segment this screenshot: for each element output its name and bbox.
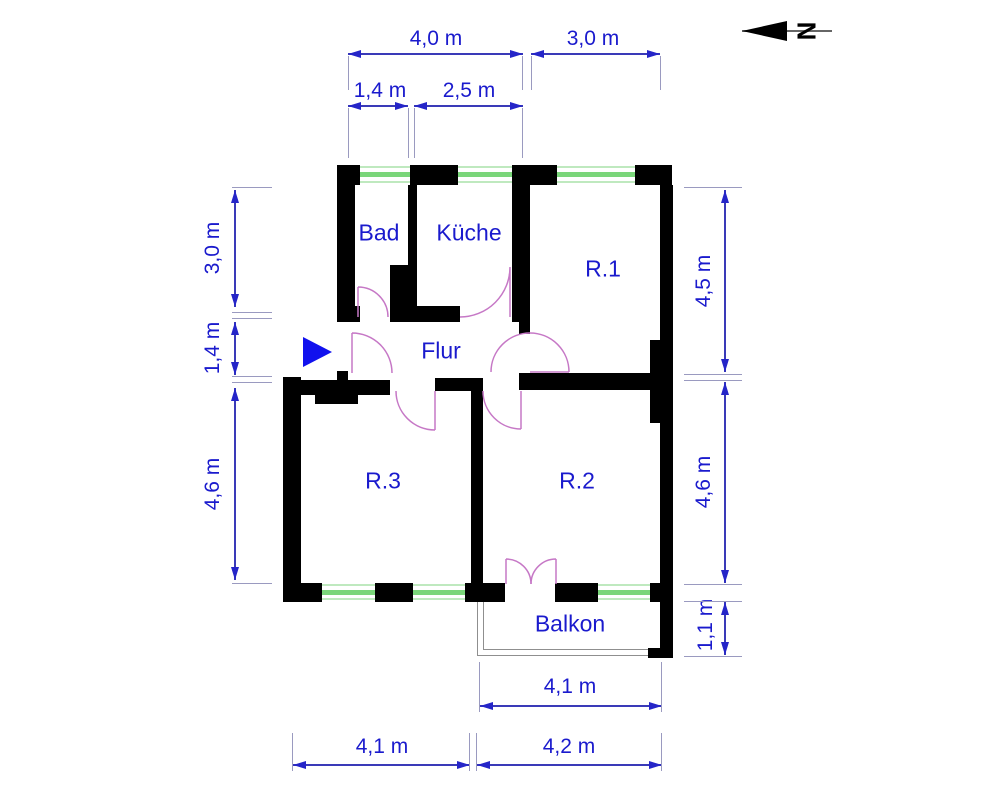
extension-line: [348, 108, 349, 158]
dim-arrow: [721, 382, 729, 395]
entrance-arrow-icon: [303, 337, 332, 367]
dim-arrow: [721, 190, 729, 203]
room-label-bad: Bad: [359, 220, 400, 247]
extension-line: [684, 187, 742, 188]
dim-arrow: [231, 322, 239, 335]
dim-arrow: [477, 761, 490, 769]
extension-line: [479, 662, 480, 712]
dim-arrow: [348, 50, 361, 58]
dim-arrow: [293, 761, 306, 769]
extension-line: [660, 56, 661, 90]
dim-text-balcony-width: 4,1 m: [544, 675, 597, 699]
dim-arrow: [231, 294, 239, 307]
dim-line: [293, 764, 470, 766]
dim-line: [477, 764, 662, 766]
door-arc-r1-left: [491, 333, 530, 372]
extension-line: [684, 584, 742, 585]
dim-line: [414, 105, 523, 107]
dim-text-right-middle: 4,6 m: [692, 456, 716, 509]
dim-arrow: [231, 567, 239, 580]
extension-line: [684, 374, 742, 375]
extension-line: [232, 382, 272, 383]
extension-line: [476, 733, 477, 771]
dim-text-bottom-right: 4,2 m: [543, 735, 596, 759]
dim-arrow: [721, 602, 729, 615]
dim-text-left-lower: 4,6 m: [201, 458, 225, 511]
dim-line: [234, 388, 236, 580]
dim-line: [480, 705, 662, 707]
dim-arrow: [231, 190, 239, 203]
extension-line: [414, 108, 415, 158]
extension-line: [469, 733, 470, 771]
dim-line: [724, 190, 726, 372]
extension-line: [292, 733, 293, 771]
extension-line: [531, 56, 532, 90]
dim-text-top-width-left: 4,0 m: [410, 27, 463, 51]
dim-line: [234, 190, 236, 307]
dim-arrow: [348, 102, 361, 110]
dim-arrow: [231, 362, 239, 375]
extension-line: [232, 583, 272, 584]
north-label: N: [791, 22, 822, 41]
door-arc-entrance: [352, 333, 392, 373]
extension-line: [408, 108, 409, 158]
extension-line: [232, 187, 272, 188]
room-label-kueche: Küche: [436, 220, 501, 247]
room-label-balkon: Balkon: [535, 611, 605, 638]
extension-line: [232, 318, 272, 319]
dim-arrow: [721, 642, 729, 655]
extension-line: [232, 312, 272, 313]
door-arc-r2: [483, 391, 521, 429]
room-label-flur: Flur: [421, 338, 461, 365]
extension-line: [684, 656, 742, 657]
door-arc-balcony-left: [506, 559, 531, 584]
extension-line: [232, 376, 272, 377]
door-swing-layer: [0, 0, 1000, 800]
dim-text-left-upper: 3,0 m: [201, 222, 225, 275]
dim-arrow: [721, 570, 729, 583]
door-arc-bad: [358, 287, 388, 317]
north-arrow-icon: [742, 21, 787, 41]
room-label-r1: R.1: [585, 256, 621, 283]
door-arc-kueche: [460, 267, 510, 317]
extension-line: [684, 380, 742, 381]
dim-text-bottom-left: 4,1 m: [356, 735, 409, 759]
dim-arrow: [531, 50, 544, 58]
floor-plan: N Bad Küche R.1 Flur R.3 R.2 Balkon 4,0 …: [0, 0, 1000, 800]
dim-text-top-sub-right: 2,5 m: [443, 79, 496, 103]
dim-arrow: [647, 50, 660, 58]
dim-arrow: [395, 102, 408, 110]
dim-line: [348, 53, 523, 55]
dim-arrow: [480, 702, 493, 710]
extension-line: [661, 662, 662, 712]
dim-text-right-lower: 1,1 m: [694, 599, 718, 652]
room-label-r3: R.3: [365, 468, 401, 495]
extension-line: [522, 56, 523, 90]
door-arc-r3: [396, 391, 435, 430]
dim-text-left-middle: 1,4 m: [201, 322, 225, 375]
dim-line: [724, 382, 726, 583]
extension-line: [522, 108, 523, 158]
dim-text-top-sub-left: 1,4 m: [354, 79, 407, 103]
dim-line: [531, 53, 660, 55]
room-label-r2: R.2: [559, 468, 595, 495]
dim-arrow: [231, 388, 239, 401]
dim-arrow: [414, 102, 427, 110]
extension-line: [684, 601, 742, 602]
door-arc-r1-right: [530, 333, 569, 372]
dim-arrow: [721, 359, 729, 372]
extension-line: [348, 56, 349, 90]
door-arc-balcony-right: [531, 559, 556, 584]
dim-text-right-upper: 4,5 m: [692, 255, 716, 308]
extension-line: [661, 733, 662, 771]
dim-text-top-width-right: 3,0 m: [567, 27, 620, 51]
